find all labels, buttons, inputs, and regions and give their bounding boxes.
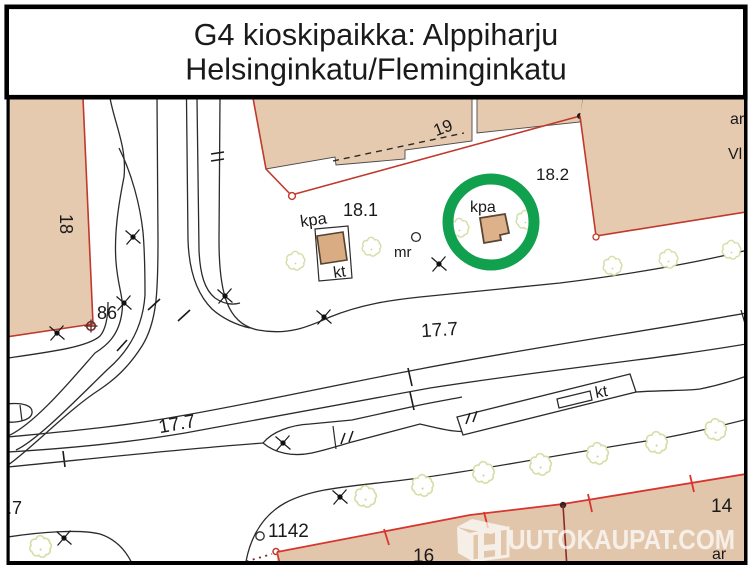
svg-text:UUTOKAUPAT.COM: UUTOKAUPAT.COM bbox=[508, 524, 735, 555]
svg-text:14: 14 bbox=[711, 496, 733, 517]
svg-text:1142: 1142 bbox=[268, 521, 309, 542]
svg-text:18.2: 18.2 bbox=[536, 165, 569, 184]
svg-text:mr: mr bbox=[394, 244, 412, 261]
svg-text:kpa: kpa bbox=[470, 199, 496, 216]
svg-text:Vl: Vl bbox=[728, 146, 742, 163]
svg-text:ar: ar bbox=[712, 546, 727, 563]
svg-text:18.1: 18.1 bbox=[343, 200, 378, 220]
svg-text:kpa: kpa bbox=[299, 209, 329, 231]
svg-text:Helsinginkatu/Fleminginkatu: Helsinginkatu/Fleminginkatu bbox=[185, 53, 566, 87]
svg-text:86: 86 bbox=[97, 303, 117, 323]
svg-text:18: 18 bbox=[56, 214, 76, 234]
svg-text:G4 kioskipaikka: Alppiharju: G4 kioskipaikka: Alppiharju bbox=[194, 18, 559, 52]
svg-text:ar: ar bbox=[730, 111, 745, 128]
svg-text:17.7: 17.7 bbox=[420, 319, 458, 343]
